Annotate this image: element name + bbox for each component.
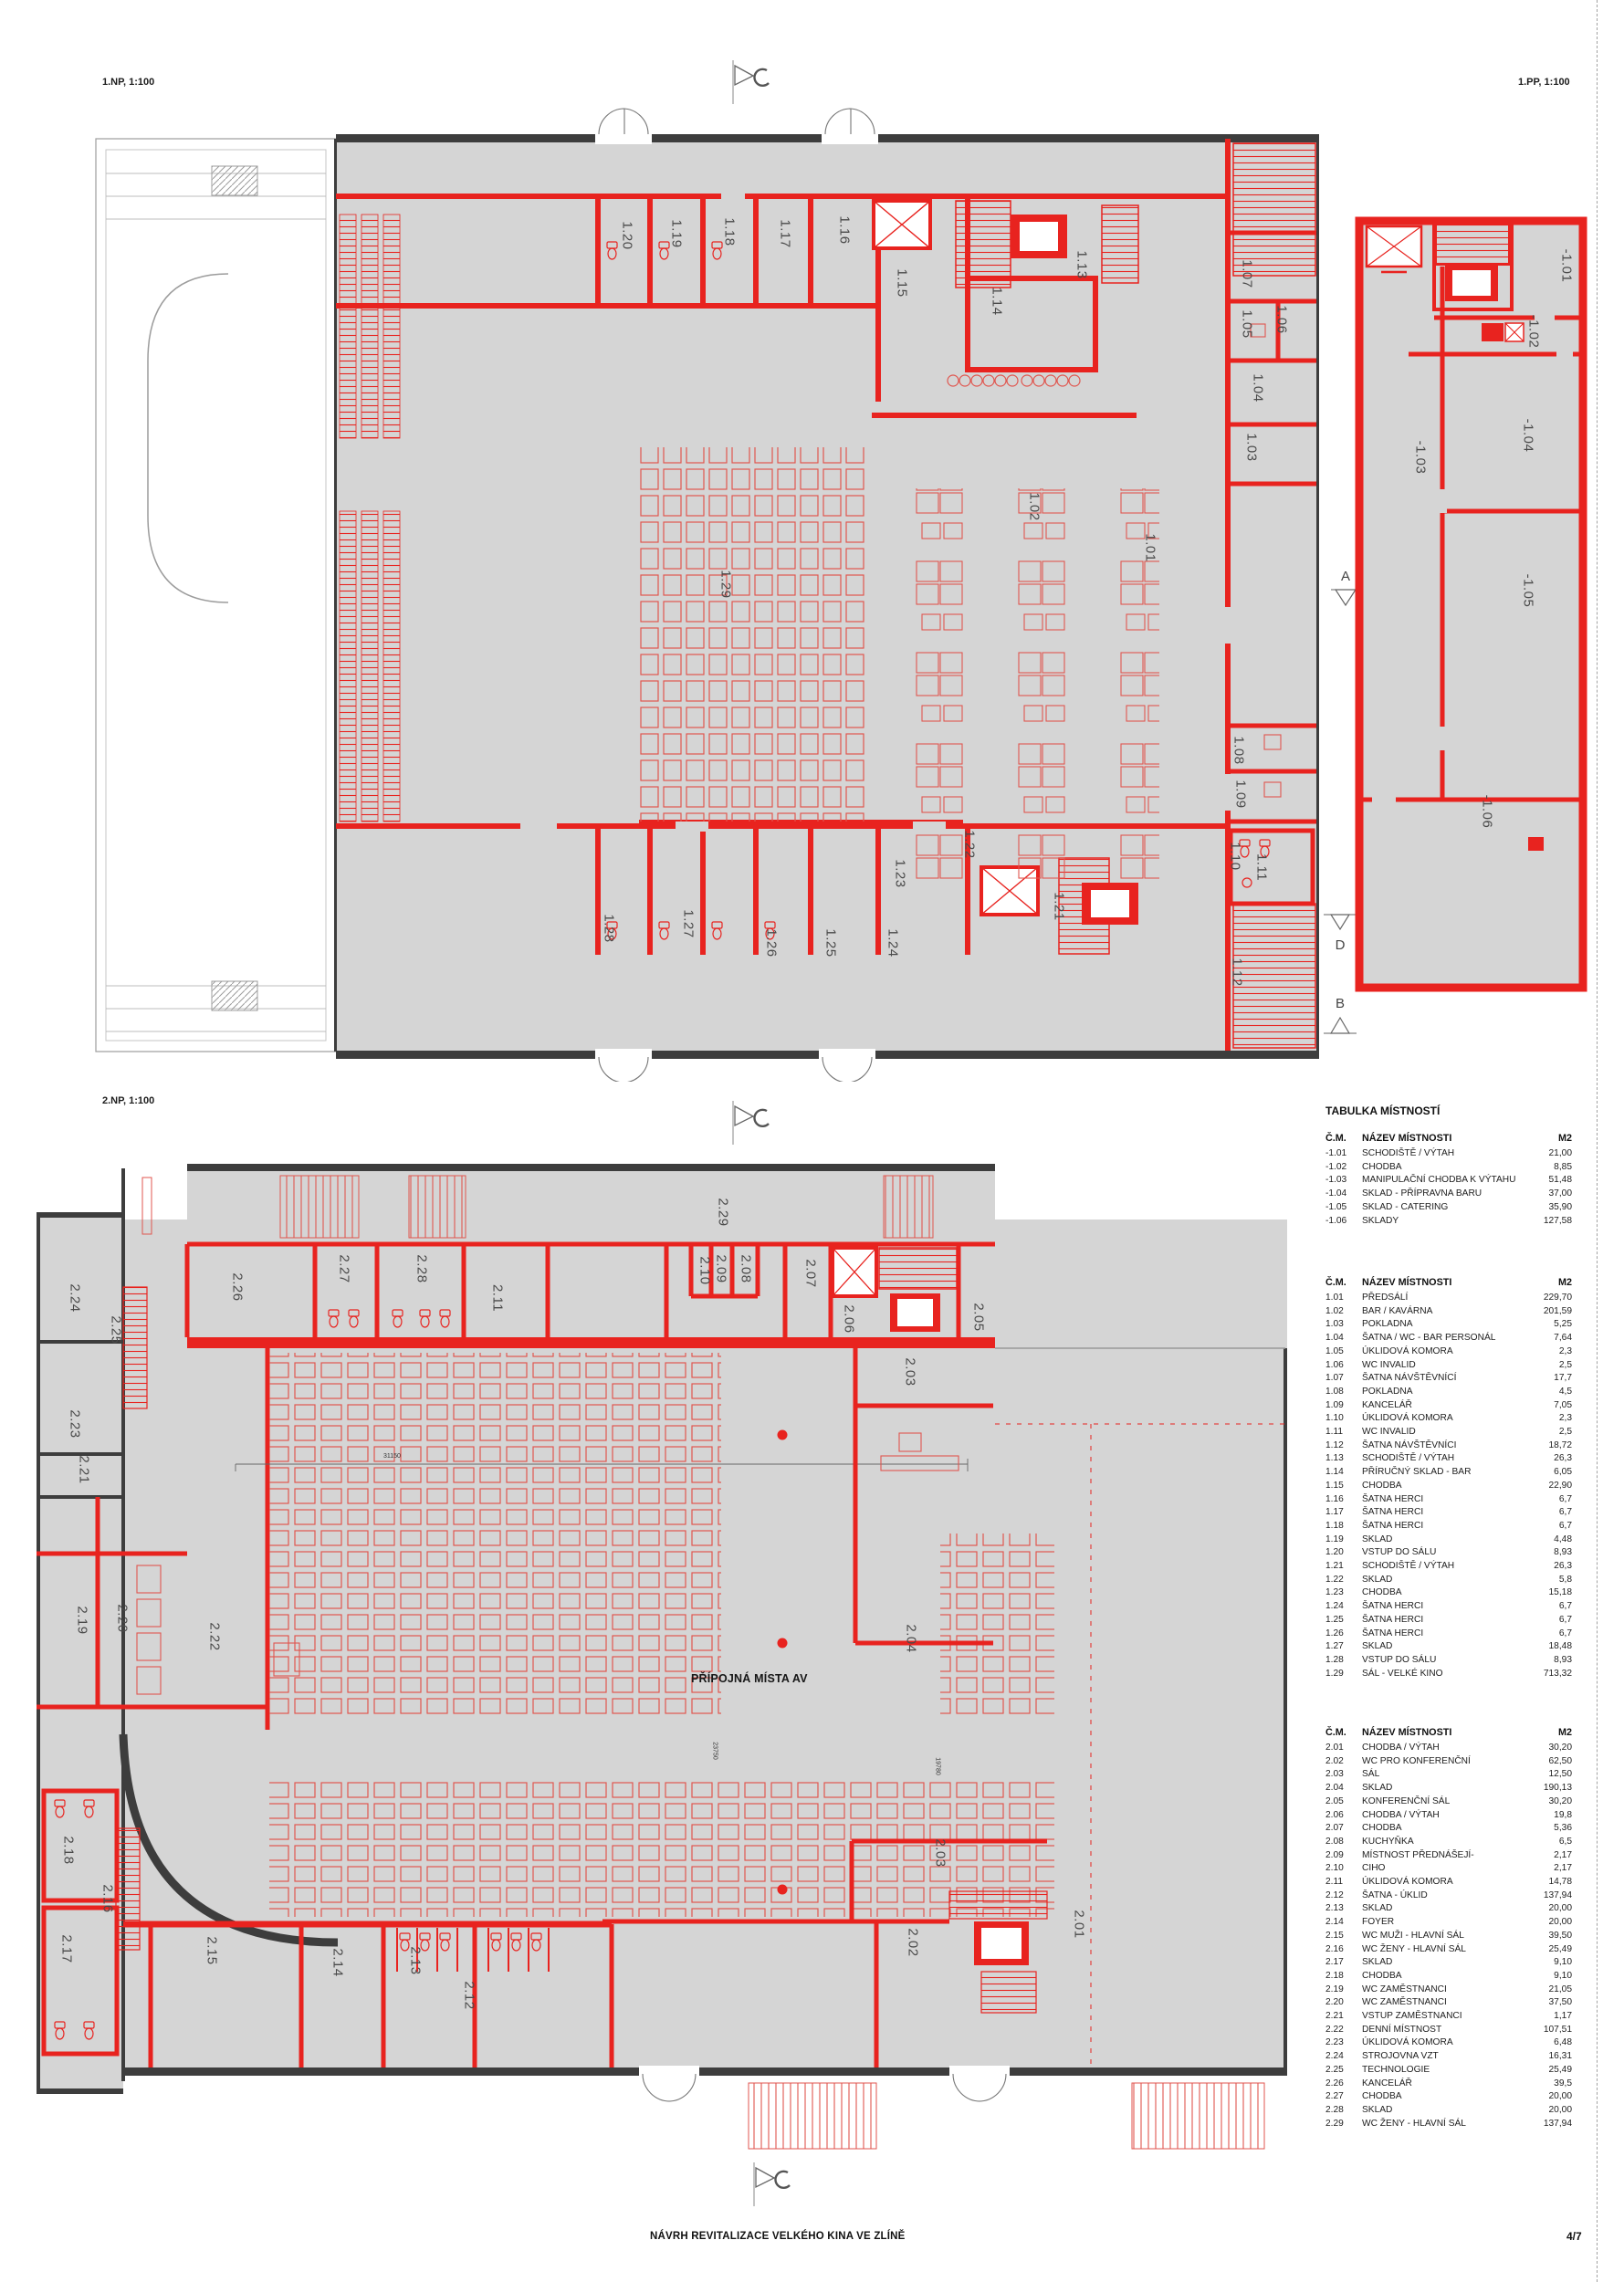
table-row: 1.23CHODBA15,18 — [1325, 1586, 1572, 1600]
table-row: -1.03MANIPULAČNÍ CHODBA K VÝTAHU51,48 — [1325, 1174, 1572, 1188]
table-header: Č.M. NÁZEV MÍSTNOSTI M2 — [1325, 1132, 1572, 1145]
table-row: -1.02CHODBA8,85 — [1325, 1161, 1572, 1175]
table-row: 1.22SKLAD5,8 — [1325, 1574, 1572, 1587]
table-row: -1.06SKLADY127,58 — [1325, 1215, 1572, 1229]
table-row: 1.13SCHODIŠTĚ / VÝTAH26,3 — [1325, 1452, 1572, 1466]
table-row: 1.15CHODBA22,90 — [1325, 1480, 1572, 1493]
table-row: 2.23ÚKLIDOVÁ KOMORA6,48 — [1325, 2036, 1572, 2050]
table-row: -1.05SKLAD - CATERING35,90 — [1325, 1201, 1572, 1215]
table-row: 1.12ŠATNA NÁVŠTĚVNÍCI18,72 — [1325, 1439, 1572, 1453]
table-row: 2.24STROJOVNA VZT16,31 — [1325, 2050, 1572, 2064]
dimension-label: 19780 — [935, 1757, 941, 1774]
page-number: 4/7 — [1566, 2230, 1582, 2243]
table-row: 1.26ŠATNA HERCI6,7 — [1325, 1628, 1572, 1641]
table-row: 2.20WC ZAMĚSTNANCI37,50 — [1325, 1996, 1572, 2010]
table-row: 2.15WC MUŽI - HLAVNÍ SÁL39,50 — [1325, 1930, 1572, 1943]
table-row: 1.25ŠATNA HERCI6,7 — [1325, 1614, 1572, 1628]
room-table-np1: Č.M. NÁZEV MÍSTNOSTI M2 1.01PŘEDSÁLÍ229,… — [1325, 1276, 1572, 1680]
table-row: 2.14FOYER20,00 — [1325, 1916, 1572, 1930]
table-row: 2.29WC ŽENY - HLAVNÍ SÁL137,94 — [1325, 2118, 1572, 2131]
plan-title-np1: 1.NP, 1:100 — [102, 77, 154, 88]
table-row: 2.18CHODBA9,10 — [1325, 1970, 1572, 1984]
table-row: -1.04SKLAD - PŘÍPRAVNA BARU37,00 — [1325, 1188, 1572, 1201]
drawing-sheet: 1.NP, 1:100 1.PP, 1:100 2.NP, 1:100 A D … — [0, 0, 1624, 2282]
north-marker-icon — [726, 1097, 775, 1148]
table-row: 2.26KANCELÁŘ39,5 — [1325, 2078, 1572, 2091]
table-row: 2.22DENNÍ MÍSTNOST107,51 — [1325, 2024, 1572, 2037]
table-row: 2.05KONFERENČNÍ SÁL30,20 — [1325, 1795, 1572, 1809]
table-row: 2.06CHODBA / VÝTAH19,8 — [1325, 1809, 1572, 1823]
table-row: 2.13SKLAD20,00 — [1325, 1902, 1572, 1916]
svg-text:B: B — [1336, 996, 1345, 1011]
table-row: 2.01CHODBA / VÝTAH30,20 — [1325, 1742, 1572, 1755]
table-row: 1.24ŠATNA HERCI6,7 — [1325, 1600, 1572, 1614]
table-row: 1.27SKLAD18,48 — [1325, 1640, 1572, 1654]
sheet-edge-dashed-line — [1597, 0, 1598, 2282]
table-row: 2.16WC ŽENY - HLAVNÍ SÁL25,49 — [1325, 1943, 1572, 1957]
room-table-np2: Č.M. NÁZEV MÍSTNOSTI M2 2.01CHODBA / VÝT… — [1325, 1726, 1572, 2130]
table-title: TABULKA MÍSTNOSTÍ — [1325, 1104, 1572, 1117]
table-row: -1.01SCHODIŠTĚ / VÝTAH21,00 — [1325, 1147, 1572, 1161]
floor-plan-np1 — [91, 96, 1324, 1082]
dimension-label: 23750 — [712, 1742, 718, 1759]
table-row: 1.16ŠATNA HERCI6,7 — [1325, 1493, 1572, 1507]
table-row: 1.17ŠATNA HERCI6,7 — [1325, 1506, 1572, 1520]
table-row: 1.28VSTUP DO SÁLU8,93 — [1325, 1654, 1572, 1668]
table-row: 1.19SKLAD4,48 — [1325, 1534, 1572, 1547]
table-row: 2.09MÍSTNOST PŘEDNÁŠEJÍ-2,17 — [1325, 1849, 1572, 1863]
table-row: 1.07ŠATNA NÁVŠTĚVNÍCÍ17,7 — [1325, 1372, 1572, 1386]
table-row: 1.14PŘÍRUČNÝ SKLAD - BAR6,05 — [1325, 1466, 1572, 1480]
table-row: 1.03POKLADNA5,25 — [1325, 1318, 1572, 1332]
dimension-label: 31150 — [383, 1453, 401, 1460]
table-row: 1.11WC INVALID2,5 — [1325, 1426, 1572, 1439]
table-row: 2.04SKLAD190,13 — [1325, 1782, 1572, 1795]
table-row: 2.07CHODBA5,36 — [1325, 1822, 1572, 1836]
table-row: 1.06WC INVALID2,5 — [1325, 1359, 1572, 1373]
svg-text:A: A — [1341, 569, 1350, 584]
table-row: 2.28SKLAD20,00 — [1325, 2104, 1572, 2118]
floor-plan-np2 — [27, 1150, 1324, 2191]
table-header: Č.M. NÁZEV MÍSTNOSTI M2 — [1325, 1276, 1572, 1289]
table-row: 1.02BAR / KAVÁRNA201,59 — [1325, 1305, 1572, 1319]
table-row: 1.08POKLADNA4,5 — [1325, 1386, 1572, 1399]
table-row: 1.10ÚKLIDOVÁ KOMORA2,3 — [1325, 1412, 1572, 1426]
table-row: 2.21VSTUP ZAMĚSTNANCI1,17 — [1325, 2010, 1572, 2024]
plan-title-np2: 2.NP, 1:100 — [102, 1095, 154, 1106]
table-row: 2.19WC ZAMĚSTNANCI21,05 — [1325, 1984, 1572, 1997]
table-row: 1.09KANCELÁŘ7,05 — [1325, 1399, 1572, 1413]
table-row: 2.08KUCHYŇKA6,5 — [1325, 1836, 1572, 1849]
table-row: 1.18ŠATNA HERCI6,7 — [1325, 1520, 1572, 1534]
table-row: 1.04ŠATNA / WC - BAR PERSONÁL7,64 — [1325, 1332, 1572, 1345]
floor-plan-pp1 — [1354, 215, 1591, 997]
table-row: 1.05ÚKLIDOVÁ KOMORA2,3 — [1325, 1345, 1572, 1359]
table-row: 2.17SKLAD9,10 — [1325, 1956, 1572, 1970]
room-table-pp1: Č.M. NÁZEV MÍSTNOSTI M2 -1.01SCHODIŠTĚ /… — [1325, 1132, 1572, 1228]
table-row: 2.12ŠATNA - ÚKLID137,94 — [1325, 1889, 1572, 1903]
table-row: 2.11ÚKLIDOVÁ KOMORA14,78 — [1325, 1876, 1572, 1889]
table-row: 1.29SÁL - VELKÉ KINO713,32 — [1325, 1668, 1572, 1681]
table-row: 2.03SÁL12,50 — [1325, 1768, 1572, 1782]
section-marker-b: B — [1320, 993, 1360, 1046]
table-row: 2.02WC PRO KONFERENČNÍ62,50 — [1325, 1755, 1572, 1769]
table-row: 2.10CIHO2,17 — [1325, 1862, 1572, 1876]
table-row: 1.21SCHODIŠTĚ / VÝTAH26,3 — [1325, 1560, 1572, 1574]
room-table-title-block: TABULKA MÍSTNOSTÍ — [1325, 1104, 1572, 1117]
table-row: 2.25TECHNOLOGIE25,49 — [1325, 2064, 1572, 2078]
sheet-title: NÁVRH REVITALIZACE VELKÉHO KINA VE ZLÍNĚ — [650, 2231, 906, 2242]
table-header: Č.M. NÁZEV MÍSTNOSTI M2 — [1325, 1726, 1572, 1739]
table-row: 1.01PŘEDSÁLÍ229,70 — [1325, 1292, 1572, 1305]
table-row: 2.27CHODBA20,00 — [1325, 2090, 1572, 2104]
svg-text:D: D — [1336, 937, 1346, 953]
plan-title-pp1: 1.PP, 1:100 — [1518, 77, 1570, 88]
av-note: PŘÍPOJNÁ MÍSTA AV — [691, 1672, 808, 1685]
table-row: 1.20VSTUP DO SÁLU8,93 — [1325, 1546, 1572, 1560]
